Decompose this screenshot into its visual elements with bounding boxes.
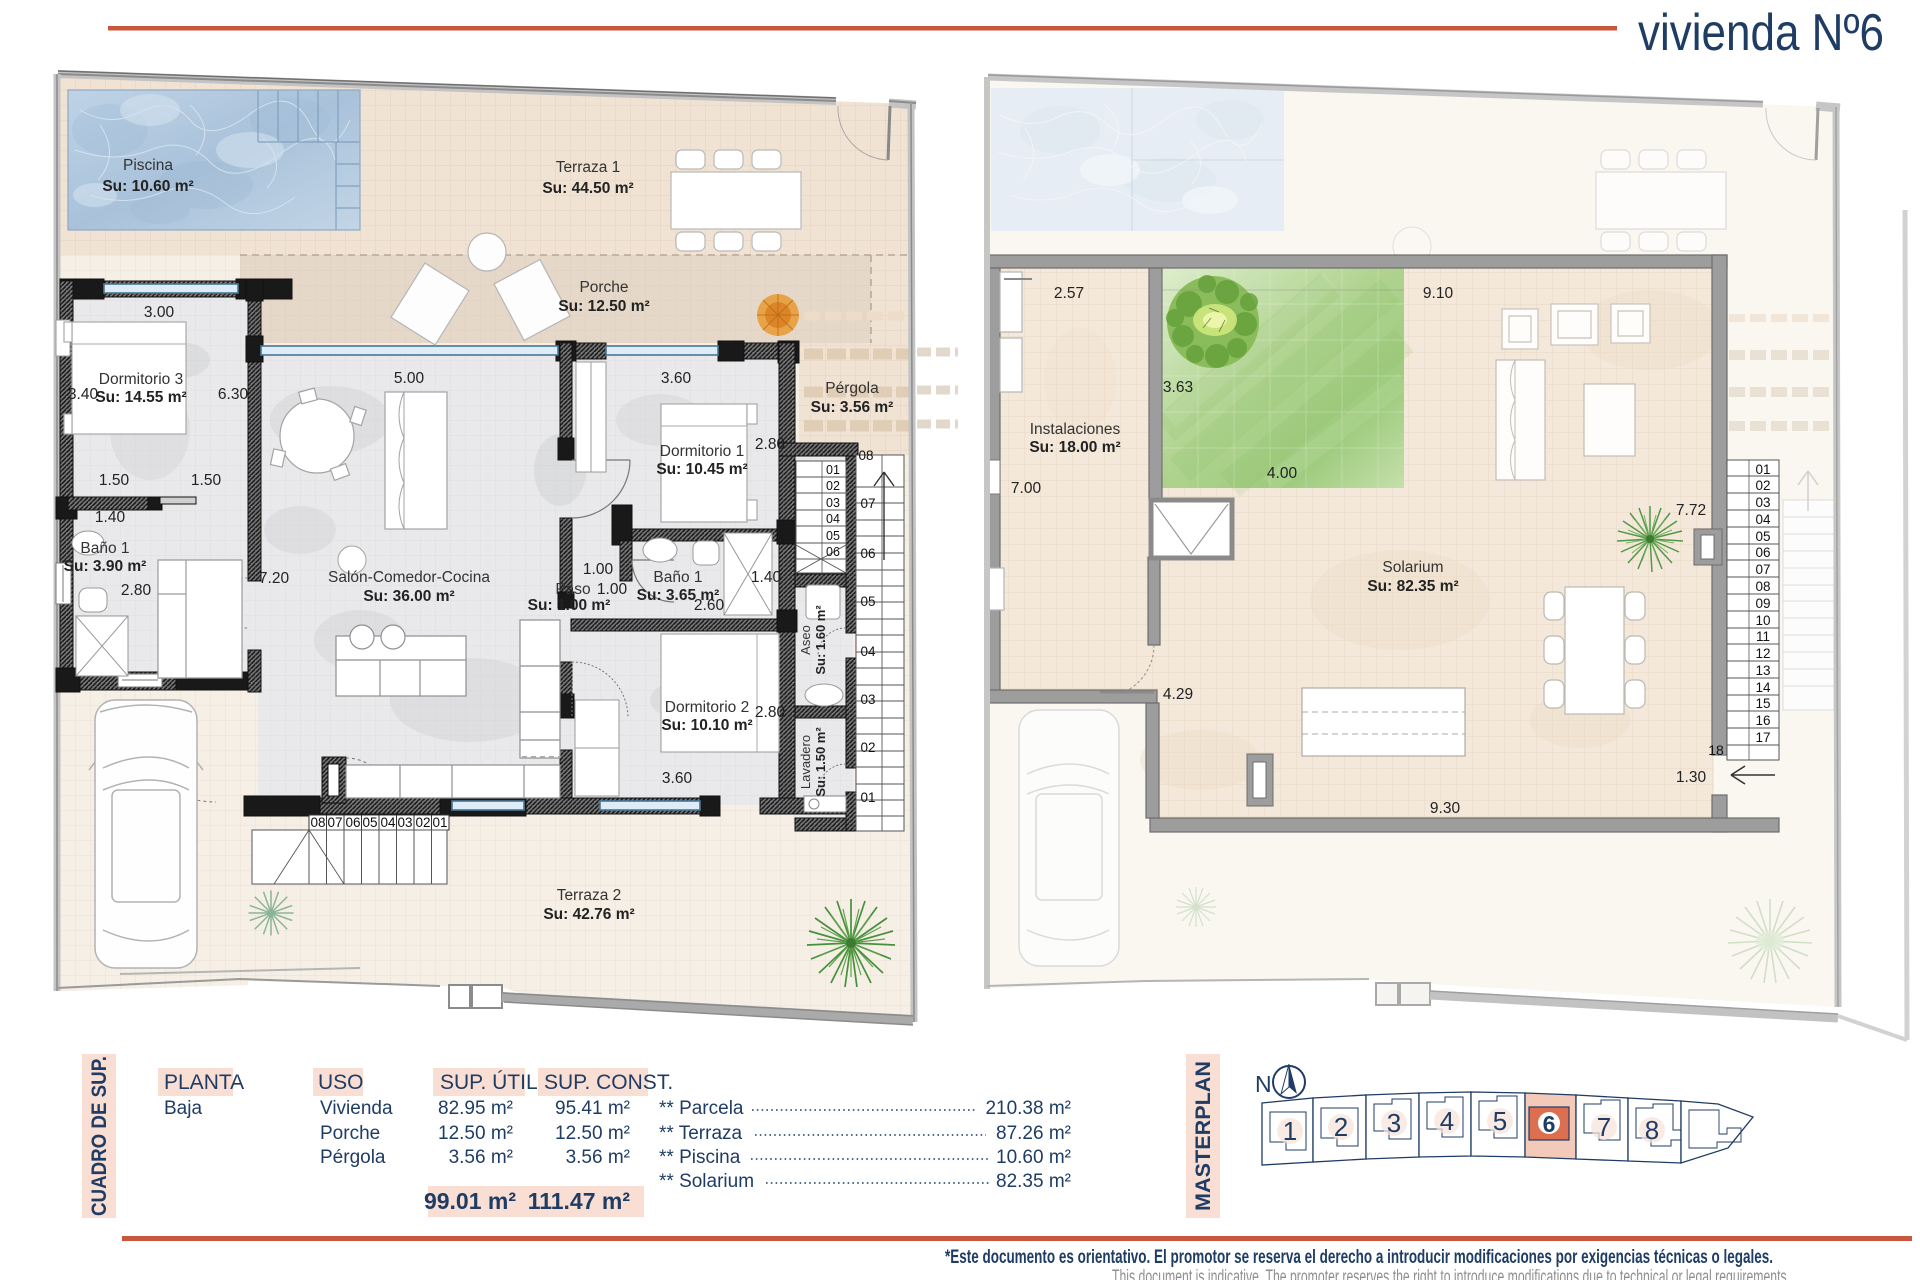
svg-text:7.72: 7.72: [1676, 502, 1706, 519]
svg-text:08: 08: [858, 448, 873, 463]
svg-text:03: 03: [860, 692, 875, 707]
svg-text:*Este documento es orientativo: *Este documento es orientativo. El promo…: [945, 1246, 1773, 1268]
svg-text:03: 03: [826, 496, 840, 510]
svg-text:Su: 10.45 m²: Su: 10.45 m²: [656, 461, 747, 478]
svg-text:4.29: 4.29: [1163, 686, 1193, 703]
svg-text:07: 07: [860, 496, 875, 511]
svg-text:9.30: 9.30: [1430, 800, 1461, 817]
svg-text:Solarium: Solarium: [1382, 559, 1443, 576]
svg-text:09: 09: [1755, 596, 1770, 611]
svg-text:2.80: 2.80: [755, 704, 786, 721]
svg-text:Pérgola: Pérgola: [825, 380, 879, 397]
svg-text:Su: 1.50 m²: Su: 1.50 m²: [813, 727, 828, 797]
svg-text:9.10: 9.10: [1423, 285, 1454, 302]
svg-text:Salón-Comedor-Cocina: Salón-Comedor-Cocina: [328, 569, 490, 586]
svg-text:CUADRO DE SUP.: CUADRO DE SUP.: [87, 1056, 111, 1216]
svg-text:02: 02: [415, 815, 430, 830]
svg-text:03: 03: [1755, 495, 1770, 510]
svg-text:210.38 m²: 210.38 m²: [985, 1098, 1071, 1119]
svg-text:01: 01: [1755, 462, 1770, 477]
svg-text:04: 04: [860, 644, 876, 659]
svg-text:Porche: Porche: [320, 1123, 380, 1144]
svg-text:Su: 10.10 m²: Su: 10.10 m²: [661, 717, 752, 734]
svg-text:Dormitorio 3: Dormitorio 3: [99, 371, 183, 388]
svg-text:Su: 82.35 m²: Su: 82.35 m²: [1367, 578, 1458, 595]
svg-text:6.30: 6.30: [218, 386, 249, 403]
svg-text:02: 02: [860, 740, 875, 755]
svg-text:04: 04: [380, 815, 396, 830]
svg-text:3.60: 3.60: [662, 770, 693, 787]
svg-text:PLANTA: PLANTA: [164, 1071, 244, 1094]
svg-text:95.41 m²: 95.41 m²: [555, 1098, 630, 1119]
svg-text:** Terraza: ** Terraza: [659, 1123, 743, 1144]
svg-text:14: 14: [1755, 680, 1771, 695]
svg-text:2.80: 2.80: [755, 436, 786, 453]
svg-text:82.35 m²: 82.35 m²: [996, 1171, 1071, 1192]
svg-text:Su: 18.00 m²: Su: 18.00 m²: [1029, 439, 1120, 456]
svg-text:01: 01: [432, 815, 447, 830]
svg-text:7.00: 7.00: [1011, 480, 1042, 497]
svg-text:06: 06: [1755, 545, 1770, 560]
svg-text:Pérgola: Pérgola: [320, 1147, 386, 1168]
svg-text:Baño 1: Baño 1: [653, 569, 702, 586]
svg-text:11: 11: [1756, 629, 1770, 644]
svg-text:06: 06: [826, 545, 840, 559]
svg-text:USO: USO: [318, 1071, 364, 1094]
svg-text:7: 7: [1597, 1112, 1611, 1142]
svg-text:4: 4: [1440, 1106, 1454, 1136]
svg-text:05: 05: [1755, 529, 1770, 544]
svg-text:01: 01: [826, 463, 840, 477]
svg-text:3.00: 3.00: [144, 304, 175, 321]
svg-text:10.60 m²: 10.60 m²: [996, 1147, 1071, 1168]
svg-text:1.40: 1.40: [751, 569, 782, 586]
svg-text:1.30: 1.30: [1676, 769, 1707, 786]
svg-text:10: 10: [1755, 613, 1770, 628]
svg-text:04: 04: [826, 512, 840, 526]
svg-text:01: 01: [860, 790, 875, 805]
svg-text:MASTERPLAN: MASTERPLAN: [1191, 1061, 1215, 1211]
svg-text:1.50: 1.50: [191, 472, 222, 489]
svg-text:SUP. ÚTIL: SUP. ÚTIL: [440, 1071, 538, 1094]
svg-text:12.50 m²: 12.50 m²: [555, 1123, 630, 1144]
svg-text:7.20: 7.20: [259, 570, 290, 587]
svg-text:Su: 42.76 m²: Su: 42.76 m²: [543, 906, 634, 923]
svg-text:13: 13: [1755, 663, 1770, 678]
svg-text:5.00: 5.00: [394, 370, 425, 387]
svg-text:Su: 3.90 m²: Su: 3.90 m²: [64, 558, 147, 575]
svg-text:Su: 3.56 m²: Su: 3.56 m²: [811, 399, 894, 416]
svg-text:Su: 12.50 m²: Su: 12.50 m²: [558, 298, 649, 315]
svg-text:87.26 m²: 87.26 m²: [996, 1123, 1071, 1144]
svg-text:Terraza 1: Terraza 1: [556, 159, 621, 176]
svg-text:08: 08: [310, 815, 325, 830]
svg-text:vivienda Nº6: vivienda Nº6: [1638, 4, 1884, 62]
svg-text:Dormitorio 1: Dormitorio 1: [660, 443, 744, 460]
svg-text:This document is indicative. T: This document is indicative. The promote…: [1112, 1266, 1790, 1280]
svg-text:** Parcela: ** Parcela: [659, 1098, 744, 1119]
svg-text:Baja: Baja: [164, 1098, 202, 1119]
svg-text:06: 06: [345, 815, 360, 830]
svg-text:** Piscina: ** Piscina: [659, 1147, 741, 1168]
svg-text:2.80: 2.80: [121, 582, 152, 599]
svg-text:Dormitorio 2: Dormitorio 2: [665, 699, 749, 716]
svg-text:02: 02: [826, 479, 840, 493]
svg-text:1.00: 1.00: [583, 561, 614, 578]
svg-text:5: 5: [1493, 1106, 1507, 1136]
svg-text:Lavadero: Lavadero: [798, 735, 813, 789]
svg-text:3.56 m²: 3.56 m²: [566, 1147, 630, 1168]
svg-text:111.47 m²: 111.47 m²: [528, 1188, 631, 1214]
svg-text:2.60: 2.60: [694, 597, 725, 614]
svg-text:1: 1: [1283, 1116, 1297, 1146]
svg-text:N: N: [1255, 1071, 1272, 1097]
svg-text:05: 05: [362, 815, 377, 830]
svg-text:Aseo: Aseo: [798, 625, 813, 655]
svg-text:16: 16: [1755, 713, 1770, 728]
svg-text:03: 03: [397, 815, 412, 830]
svg-text:2.57: 2.57: [1054, 285, 1084, 302]
svg-text:Porche: Porche: [579, 279, 628, 296]
svg-text:SUP. CONST.: SUP. CONST.: [544, 1071, 673, 1094]
svg-text:Su: 44.50 m²: Su: 44.50 m²: [542, 180, 633, 197]
svg-text:3.60: 3.60: [661, 370, 692, 387]
svg-text:15: 15: [1755, 696, 1770, 711]
svg-text:05: 05: [826, 529, 840, 543]
svg-text:08: 08: [1755, 579, 1770, 594]
svg-text:Su: 1.00 m²: Su: 1.00 m²: [528, 597, 611, 614]
svg-text:Su: 10.60 m²: Su: 10.60 m²: [102, 178, 193, 195]
svg-text:17: 17: [1755, 730, 1770, 745]
svg-text:Su: 1.60 m²: Su: 1.60 m²: [813, 605, 828, 675]
svg-text:3.40: 3.40: [68, 386, 99, 403]
svg-text:12: 12: [1755, 646, 1770, 661]
svg-text:18: 18: [1708, 742, 1724, 758]
svg-text:Piscina: Piscina: [123, 157, 173, 174]
svg-text:1.40: 1.40: [95, 509, 126, 526]
svg-text:8: 8: [1645, 1115, 1659, 1145]
svg-text:1.50: 1.50: [99, 472, 130, 489]
svg-text:1.00: 1.00: [597, 581, 628, 598]
svg-text:3.56 m²: 3.56 m²: [449, 1147, 513, 1168]
svg-text:2: 2: [1334, 1112, 1348, 1142]
svg-text:3: 3: [1387, 1108, 1401, 1138]
svg-text:82.95 m²: 82.95 m²: [438, 1098, 513, 1119]
svg-text:Su: 36.00 m²: Su: 36.00 m²: [363, 588, 454, 605]
svg-text:Instalaciones: Instalaciones: [1030, 421, 1121, 438]
svg-text:4.00: 4.00: [1267, 465, 1298, 482]
svg-text:06: 06: [860, 546, 875, 561]
svg-text:99.01 m²: 99.01 m²: [424, 1188, 516, 1214]
svg-text:Paso: Paso: [555, 581, 590, 598]
svg-text:07: 07: [327, 815, 342, 830]
svg-text:6: 6: [1543, 1111, 1556, 1137]
svg-text:Baño 1: Baño 1: [80, 540, 129, 557]
svg-text:12.50 m²: 12.50 m²: [438, 1123, 513, 1144]
svg-text:Su: 14.55 m²: Su: 14.55 m²: [95, 389, 186, 406]
svg-text:07: 07: [1755, 562, 1770, 577]
svg-text:Vivienda: Vivienda: [320, 1098, 393, 1119]
svg-text:** Solarium: ** Solarium: [659, 1171, 754, 1192]
svg-text:04: 04: [1755, 512, 1771, 527]
svg-text:Terraza 2: Terraza 2: [557, 887, 622, 904]
svg-text:02: 02: [1755, 478, 1770, 493]
svg-text:05: 05: [860, 594, 875, 609]
svg-text:3.63: 3.63: [1163, 379, 1193, 396]
